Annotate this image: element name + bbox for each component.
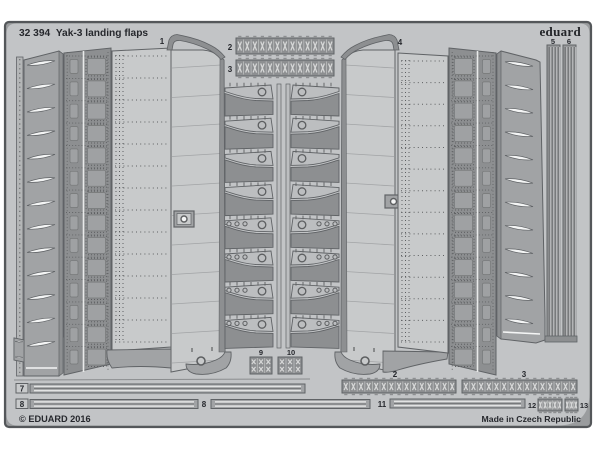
svg-text:2: 2	[228, 43, 233, 52]
svg-text:7: 7	[20, 385, 25, 394]
svg-text:© EDUARD 2016: © EDUARD 2016	[19, 414, 91, 424]
svg-text:5: 5	[551, 37, 555, 46]
svg-text:8: 8	[202, 400, 207, 409]
svg-text:2: 2	[393, 370, 398, 379]
svg-text:11: 11	[378, 400, 387, 409]
svg-text:1: 1	[160, 37, 165, 46]
svg-text:4: 4	[398, 38, 403, 47]
svg-text:eduard: eduard	[539, 24, 581, 39]
svg-text:32 394 Yak-3 landing flaps: 32 394 Yak-3 landing flaps	[19, 28, 148, 39]
svg-text:Made in Czech Republic: Made in Czech Republic	[482, 414, 582, 424]
svg-text:3: 3	[522, 370, 527, 379]
svg-text:13: 13	[580, 401, 588, 410]
svg-text:8: 8	[20, 400, 25, 409]
svg-text:10: 10	[287, 348, 295, 357]
svg-text:3: 3	[228, 65, 233, 74]
svg-text:12: 12	[528, 401, 536, 410]
svg-text:6: 6	[567, 37, 571, 46]
svg-text:9: 9	[259, 348, 263, 357]
